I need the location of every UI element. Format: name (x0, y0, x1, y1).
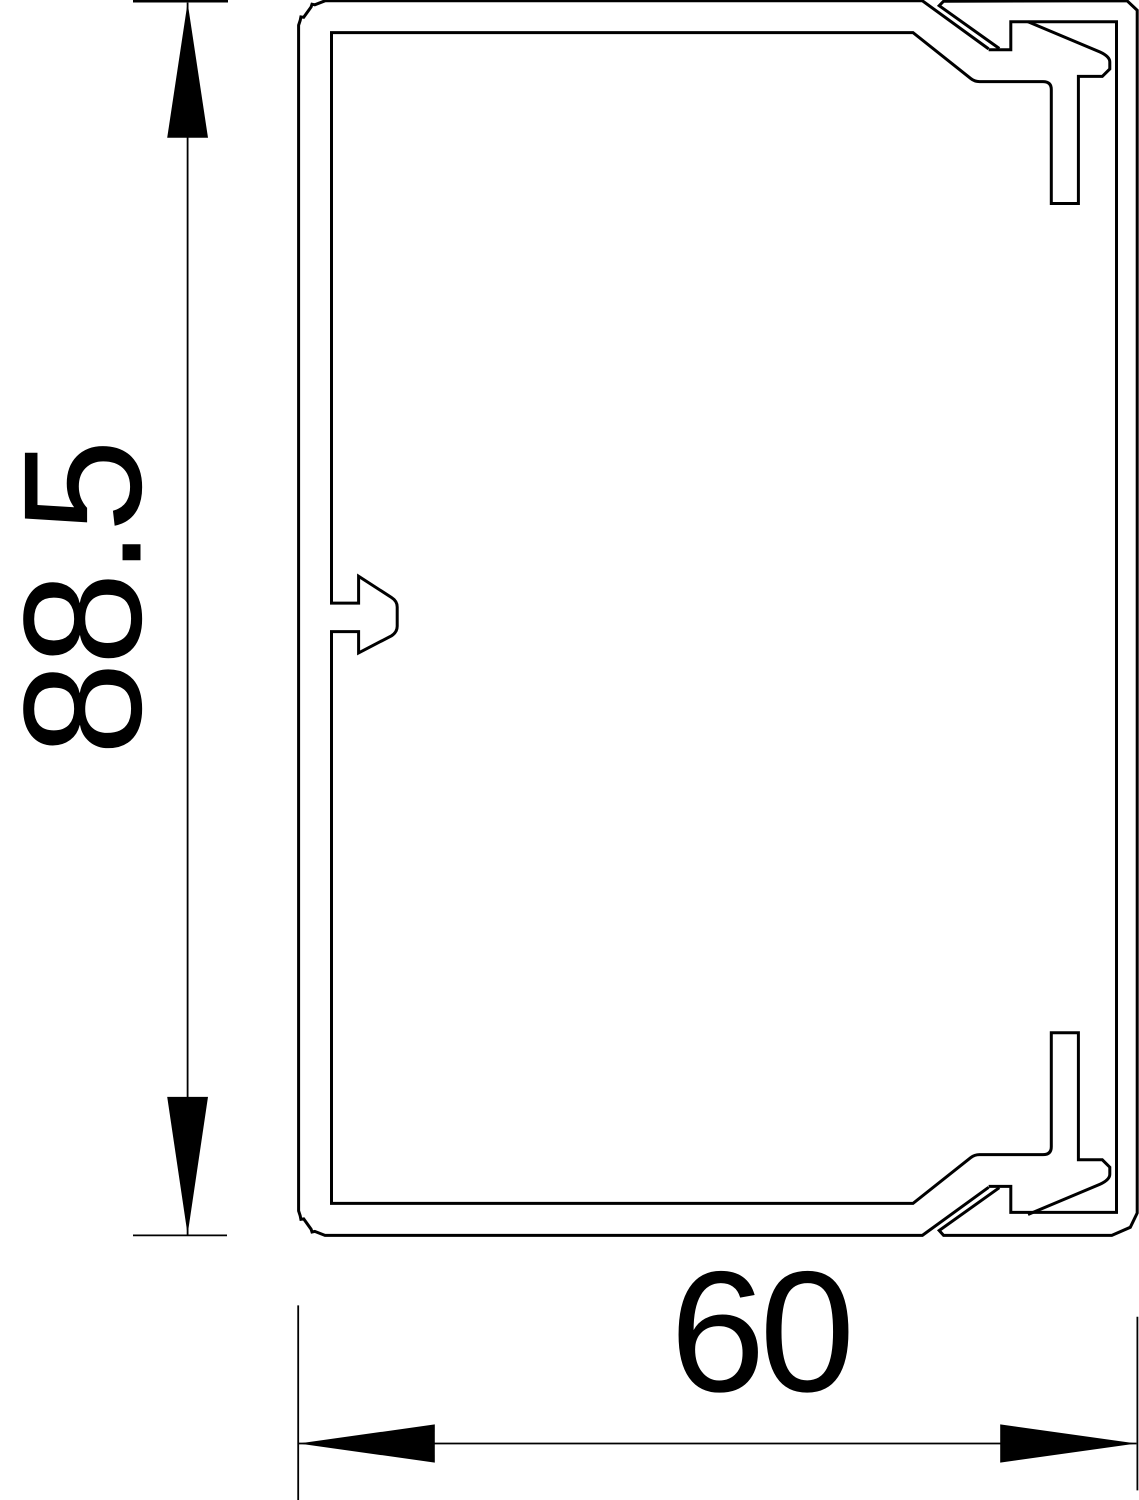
svg-text:88.5: 88.5 (0, 443, 177, 756)
svg-text:60: 60 (670, 1236, 849, 1428)
